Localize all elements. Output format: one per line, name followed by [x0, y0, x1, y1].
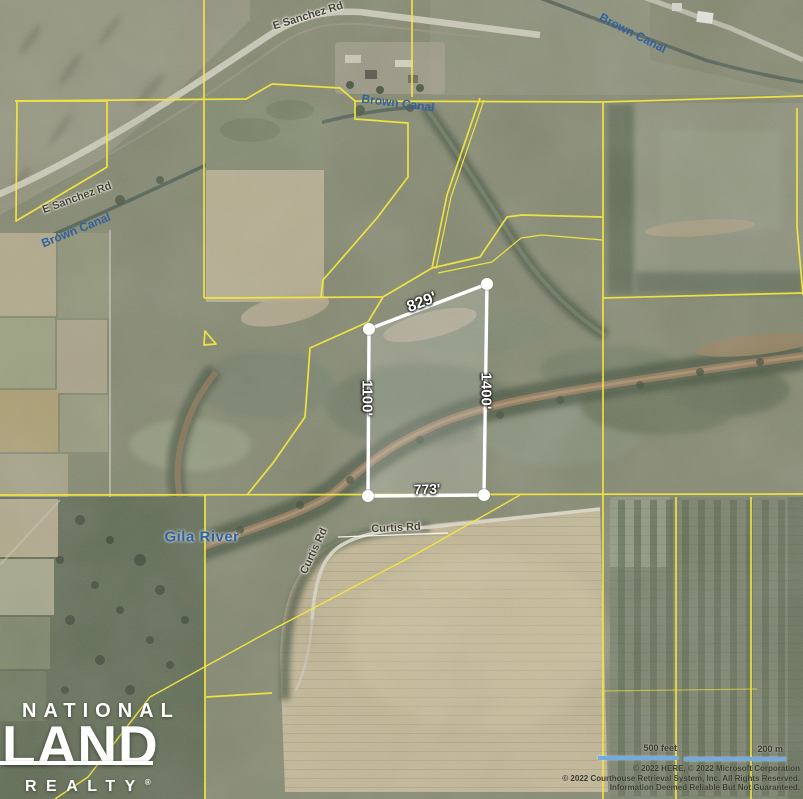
logo-realty-text: REALTY® — [25, 778, 151, 796]
attribution-line-3: Information Deemed Reliable But Not Guar… — [562, 783, 800, 793]
registered-mark: ® — [145, 778, 151, 787]
map-attribution: © 2022 HERE, © 2022 Microsoft Corporatio… — [562, 764, 800, 793]
brand-logo: NATIONAL LAND REALTY® — [0, 690, 220, 799]
scale-meters-label: 200 m — [757, 744, 783, 754]
map-canvas — [0, 0, 803, 799]
satellite-map-view[interactable]: E Sanchez Rd Brown Canal Brown Canal E S… — [0, 0, 803, 799]
attribution-line-2: © 2022 Courthouse Retrieval System, Inc.… — [562, 774, 800, 784]
attribution-line-1: © 2022 HERE, © 2022 Microsoft Corporatio… — [562, 764, 800, 774]
logo-crossbar — [0, 761, 153, 765]
scale-feet-label: 500 feet — [643, 743, 677, 753]
scale-bar-meters — [684, 757, 786, 761]
scale-bar-feet — [598, 756, 678, 760]
